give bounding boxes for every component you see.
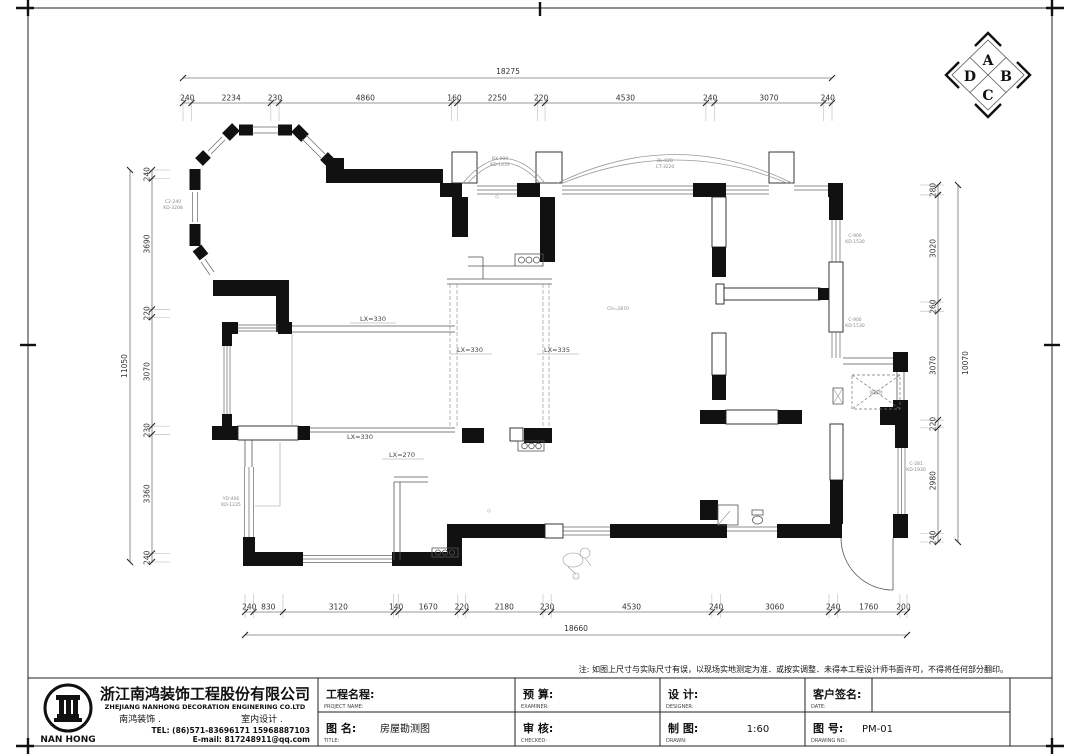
title-block: NAN HONG 浙江南鸿装饰工程股份有限公司 ZHEJIANG NANHONG…: [28, 678, 1052, 746]
svg-text:10070: 10070: [961, 351, 970, 375]
equipment-platform-label: 设备台: [869, 389, 883, 396]
svg-text:KD-1435: KD-1435: [490, 162, 510, 168]
svg-text:KD-1235: KD-1235: [221, 502, 241, 508]
svg-text:240: 240: [709, 603, 724, 612]
svg-text:CHECKED:: CHECKED:: [521, 738, 547, 744]
compass-letter-b: B: [1000, 69, 1012, 85]
svg-text:3120: 3120: [329, 603, 348, 612]
wall-label: LX=330: [347, 433, 373, 441]
design-label: 设 计:: [668, 687, 698, 701]
wall-label: LX=270: [389, 451, 415, 459]
bottom-walls: [245, 514, 908, 590]
compass-letter-a: A: [982, 53, 995, 69]
svg-text:240: 240: [826, 603, 841, 612]
svg-text:BX-900: BX-900: [492, 156, 508, 162]
svg-text:C2-240: C2-240: [165, 199, 181, 205]
wall-label: LX=330: [360, 315, 386, 323]
svg-text:240: 240: [180, 94, 195, 103]
wall-label: LX=335: [544, 346, 570, 354]
svg-text:PROJECT NAME:: PROJECT NAME:: [324, 704, 364, 710]
drawing-title-value: 房屋勘测图: [380, 722, 430, 735]
svg-text:240: 240: [703, 94, 718, 103]
bay-window-turret: [193, 127, 345, 332]
compass-letter-c: C: [982, 88, 993, 104]
svg-text:3690: 3690: [143, 234, 152, 253]
svg-text:3360: 3360: [143, 484, 152, 503]
svg-text:DRAWN:: DRAWN:: [666, 738, 687, 744]
interior-partitions-right: [700, 197, 843, 524]
wall-label: LX=330: [457, 346, 483, 354]
dimension-overall-top: 18275: [180, 67, 835, 81]
svg-text:4530: 4530: [622, 603, 641, 612]
svg-text:3070: 3070: [759, 94, 778, 103]
svg-text:2250: 2250: [488, 94, 507, 103]
interior-partitions-left: [255, 326, 455, 560]
plan-labels: LX=330 LX=330 LX=335 LX=330 LX=270 CH=28…: [347, 194, 883, 514]
svg-text:140: 140: [389, 603, 404, 612]
dimension-chain-top: 24022342304860160225022045302403070240: [180, 94, 835, 122]
drawn-label: 制 图:: [668, 721, 698, 735]
furniture-sketch: [563, 548, 591, 579]
drawing-no-value: PM-01: [862, 724, 893, 735]
disclaimer-note: 注: 如图上尺寸与实际尺寸有误，以现场实地测定为准．或按实调整．未得本工程设计师…: [579, 664, 1008, 674]
svg-text:KD-3208: KD-3208: [163, 205, 183, 211]
svg-text:CT-3220: CT-3220: [656, 164, 675, 170]
dimension-chain-left: 240369022030702303360240: [143, 167, 171, 565]
svg-text:2980: 2980: [929, 471, 938, 490]
drawing-no-label: 图 号:: [813, 722, 843, 735]
ceiling-height-label: CH=2870: [607, 306, 629, 312]
orientation-compass: A B C D: [946, 33, 1030, 117]
svg-text:4530: 4530: [616, 94, 635, 103]
svg-text:11050: 11050: [120, 354, 129, 378]
svg-text:1760: 1760: [859, 603, 878, 612]
svg-text:260: 260: [929, 299, 938, 314]
diamond-symbol: ◇: [487, 508, 491, 514]
dimension-chain-right: 280302026030702202980240: [920, 182, 944, 545]
svg-text:18275: 18275: [496, 67, 520, 76]
scale-value: 1:60: [747, 724, 769, 735]
drawing-sheet: A B C D: [0, 0, 1080, 756]
svg-text:3020: 3020: [929, 239, 938, 258]
svg-text:240: 240: [821, 94, 836, 103]
logo-caption: NAN HONG: [40, 735, 95, 745]
svg-text:2234: 2234: [222, 94, 241, 103]
company-dept-right: 室内设计 .: [241, 713, 283, 725]
svg-text:KD-1530: KD-1530: [845, 239, 865, 245]
svg-text:DESIGNER:: DESIGNER:: [666, 704, 694, 710]
svg-text:C-281: C-281: [909, 461, 922, 467]
company-dept-left: 南鸿装饰 .: [119, 713, 161, 725]
entry-door-swing-arc: [841, 538, 893, 590]
company-block: NAN HONG 浙江南鸿装饰工程股份有限公司 ZHEJIANG NANHONG…: [40, 685, 310, 745]
floor-plan-canvas: A B C D: [0, 0, 1080, 756]
svg-text:240: 240: [143, 167, 152, 182]
dimension-chain-bottom: 2408303120140167022021802304530240306024…: [242, 594, 911, 618]
company-name-cn: 浙江南鸿装饰工程股份有限公司: [100, 685, 310, 703]
top-wall-band: [340, 152, 843, 197]
svg-text:KD-1930: KD-1930: [906, 467, 926, 473]
svg-text:BL-620: BL-620: [657, 158, 673, 164]
project-name-label: 工程名程:: [326, 687, 374, 701]
svg-text:2180: 2180: [495, 603, 514, 612]
svg-text:240: 240: [143, 550, 152, 565]
left-walls: [212, 322, 310, 566]
svg-text:KD-1530: KD-1530: [845, 323, 865, 329]
svg-text:C-900: C-900: [848, 233, 861, 239]
svg-text:TITLE:: TITLE:: [323, 738, 340, 744]
svg-text:3070: 3070: [929, 356, 938, 375]
equipment-platform: [833, 352, 908, 425]
svg-text:1670: 1670: [419, 603, 438, 612]
diamond-symbol: ◇: [495, 194, 499, 200]
svg-text:830: 830: [261, 603, 276, 612]
svg-text:EXAMINER:: EXAMINER:: [521, 704, 549, 710]
svg-text:230: 230: [143, 423, 152, 438]
sheet-frame: [16, 0, 1064, 754]
svg-text:3060: 3060: [765, 603, 784, 612]
dimension-overall-left: 11050: [120, 167, 133, 565]
dimension-overall-bottom: 18660: [242, 624, 910, 638]
svg-text:18660: 18660: [564, 624, 588, 633]
kitchen-and-corridor: [447, 197, 555, 451]
dimension-overall-right: 10070: [955, 182, 970, 545]
drawing-title-label: 图 名:: [326, 721, 356, 735]
svg-text:4860: 4860: [356, 94, 375, 103]
budget-label: 预 算:: [523, 687, 553, 701]
company-email: E-mail: 817248911@qq.com: [193, 735, 311, 744]
company-tel: TEL: (86)571-83696171 15968887103: [152, 726, 310, 735]
company-name-en: ZHEJIANG NANHONG DECORATION ENGINERING C…: [105, 703, 306, 711]
svg-text:DATE:: DATE:: [811, 704, 826, 710]
client-signature-label: 客户签名:: [812, 687, 861, 701]
check-label: 审 核:: [523, 721, 553, 735]
svg-text:C-900: C-900: [848, 317, 861, 323]
compass-letter-d: D: [964, 69, 976, 85]
svg-text:3070: 3070: [143, 362, 152, 381]
svg-text:240: 240: [242, 603, 257, 612]
svg-text:YD-406: YD-406: [222, 496, 240, 502]
bathroom-fixtures: [700, 500, 763, 525]
svg-text:DRAWING NO.:: DRAWING NO.:: [811, 738, 848, 744]
svg-text:240: 240: [929, 530, 938, 545]
